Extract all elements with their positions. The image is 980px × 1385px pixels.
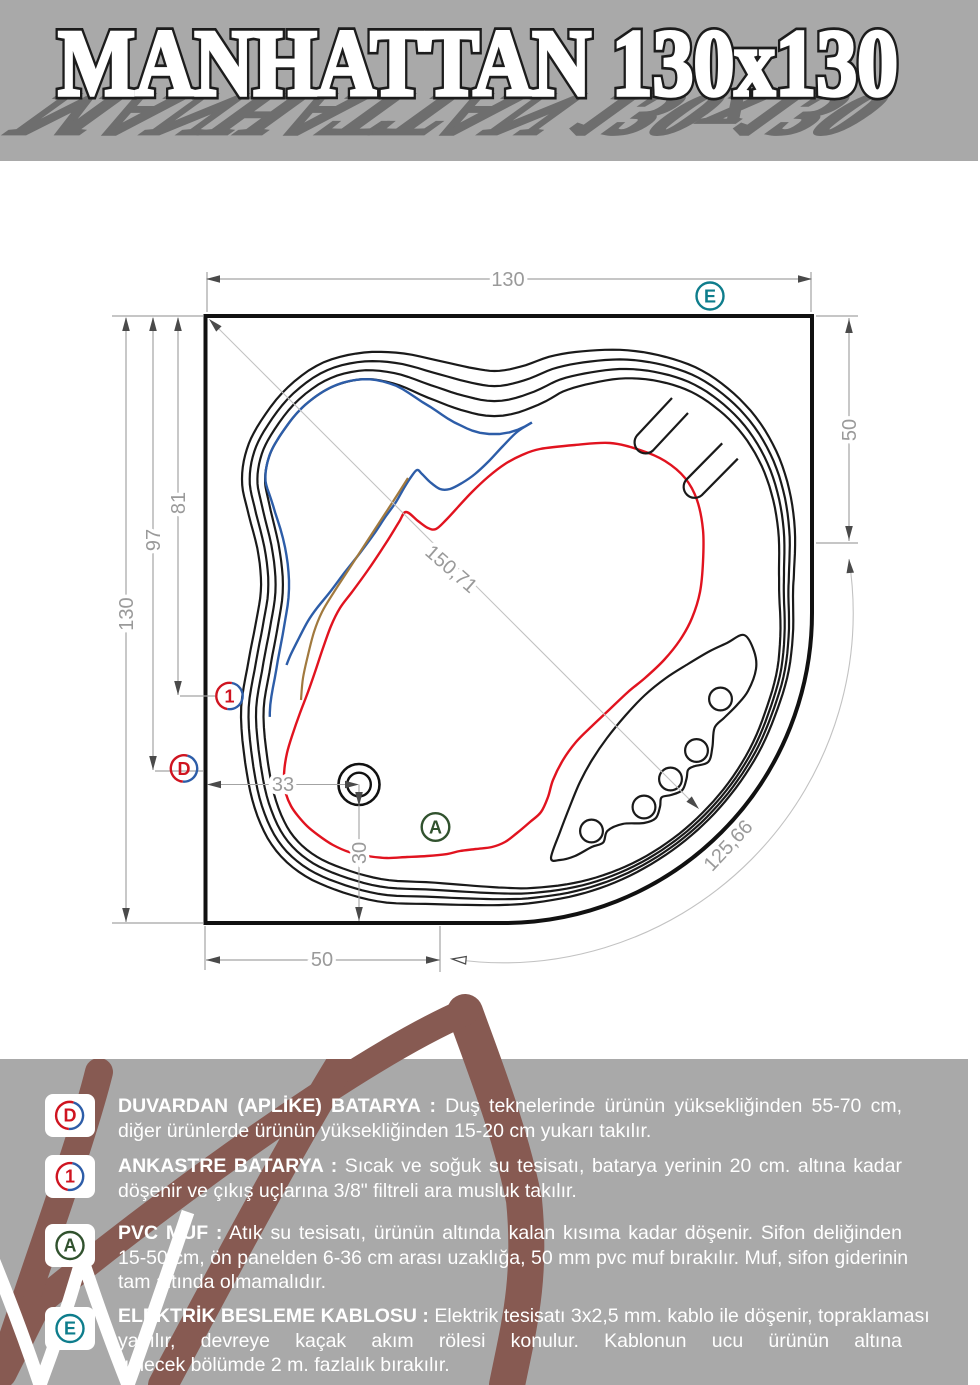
svg-text:A: A	[64, 1236, 77, 1256]
svg-text:1: 1	[65, 1167, 75, 1187]
svg-text:E: E	[64, 1319, 76, 1339]
svg-text:D: D	[64, 1106, 77, 1126]
